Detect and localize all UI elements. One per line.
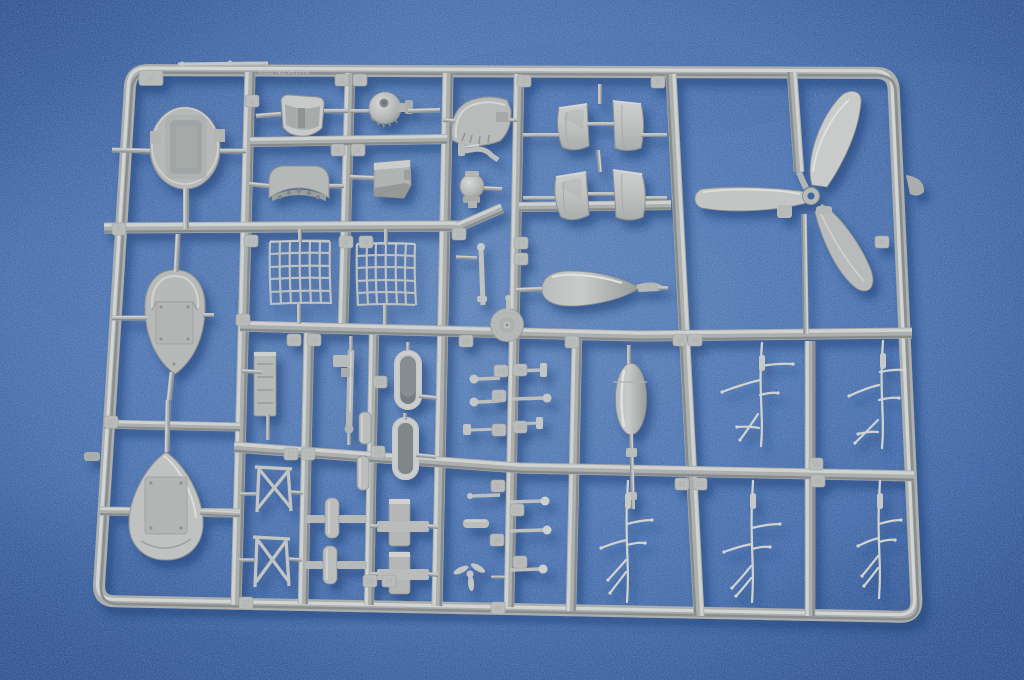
svg-text:33: 33	[493, 538, 501, 545]
svg-text:17: 17	[247, 239, 255, 246]
svg-text:36: 36	[812, 462, 820, 469]
svg-text:28: 28	[462, 339, 470, 346]
svg-text:20: 20	[310, 338, 318, 345]
svg-text:10: 10	[239, 318, 247, 325]
svg-text:40: 40	[691, 338, 699, 345]
svg-text:37: 37	[513, 508, 521, 515]
svg-text:8: 8	[522, 79, 526, 86]
svg-text:23: 23	[366, 579, 374, 586]
svg-text:38: 38	[814, 479, 822, 486]
svg-text:41: 41	[678, 482, 686, 489]
svg-text:5: 5	[364, 240, 368, 247]
svg-text:35: 35	[516, 368, 524, 375]
svg-text:22: 22	[304, 452, 312, 459]
svg-text:39: 39	[676, 338, 684, 345]
svg-text:6: 6	[880, 240, 884, 247]
svg-text:4: 4	[336, 148, 340, 155]
svg-text:5: 5	[356, 148, 360, 155]
svg-text:38: 38	[516, 560, 524, 567]
svg-text:27: 27	[242, 601, 250, 608]
svg-text:2: 2	[340, 78, 344, 85]
svg-text:4: 4	[344, 240, 348, 247]
svg-text:21: 21	[287, 452, 295, 459]
svg-text:42: 42	[696, 482, 704, 489]
svg-text:34: 34	[494, 606, 502, 613]
svg-text:32: 32	[495, 394, 503, 401]
svg-text:15: 15	[517, 241, 525, 248]
svg-text:13: 13	[568, 340, 576, 347]
svg-text:9: 9	[656, 80, 660, 87]
svg-text:20: 20	[107, 420, 115, 427]
svg-text:31: 31	[495, 428, 503, 435]
svg-text:1: 1	[250, 99, 254, 106]
svg-text:3: 3	[358, 78, 362, 85]
svg-text:26: 26	[374, 450, 382, 457]
svg-text:29: 29	[497, 369, 505, 376]
svg-text:12: 12	[455, 232, 463, 239]
svg-text:32: 32	[494, 484, 502, 491]
svg-text:30: 30	[516, 425, 524, 432]
svg-text:I0311 NO.96137B: I0311 NO.96137B	[258, 69, 310, 76]
svg-text:S: S	[149, 76, 154, 83]
svg-text:24: 24	[385, 579, 393, 586]
svg-text:7: 7	[117, 227, 121, 234]
svg-text:25: 25	[376, 380, 384, 387]
svg-text:19: 19	[290, 338, 298, 345]
svg-text:16: 16	[517, 257, 525, 264]
